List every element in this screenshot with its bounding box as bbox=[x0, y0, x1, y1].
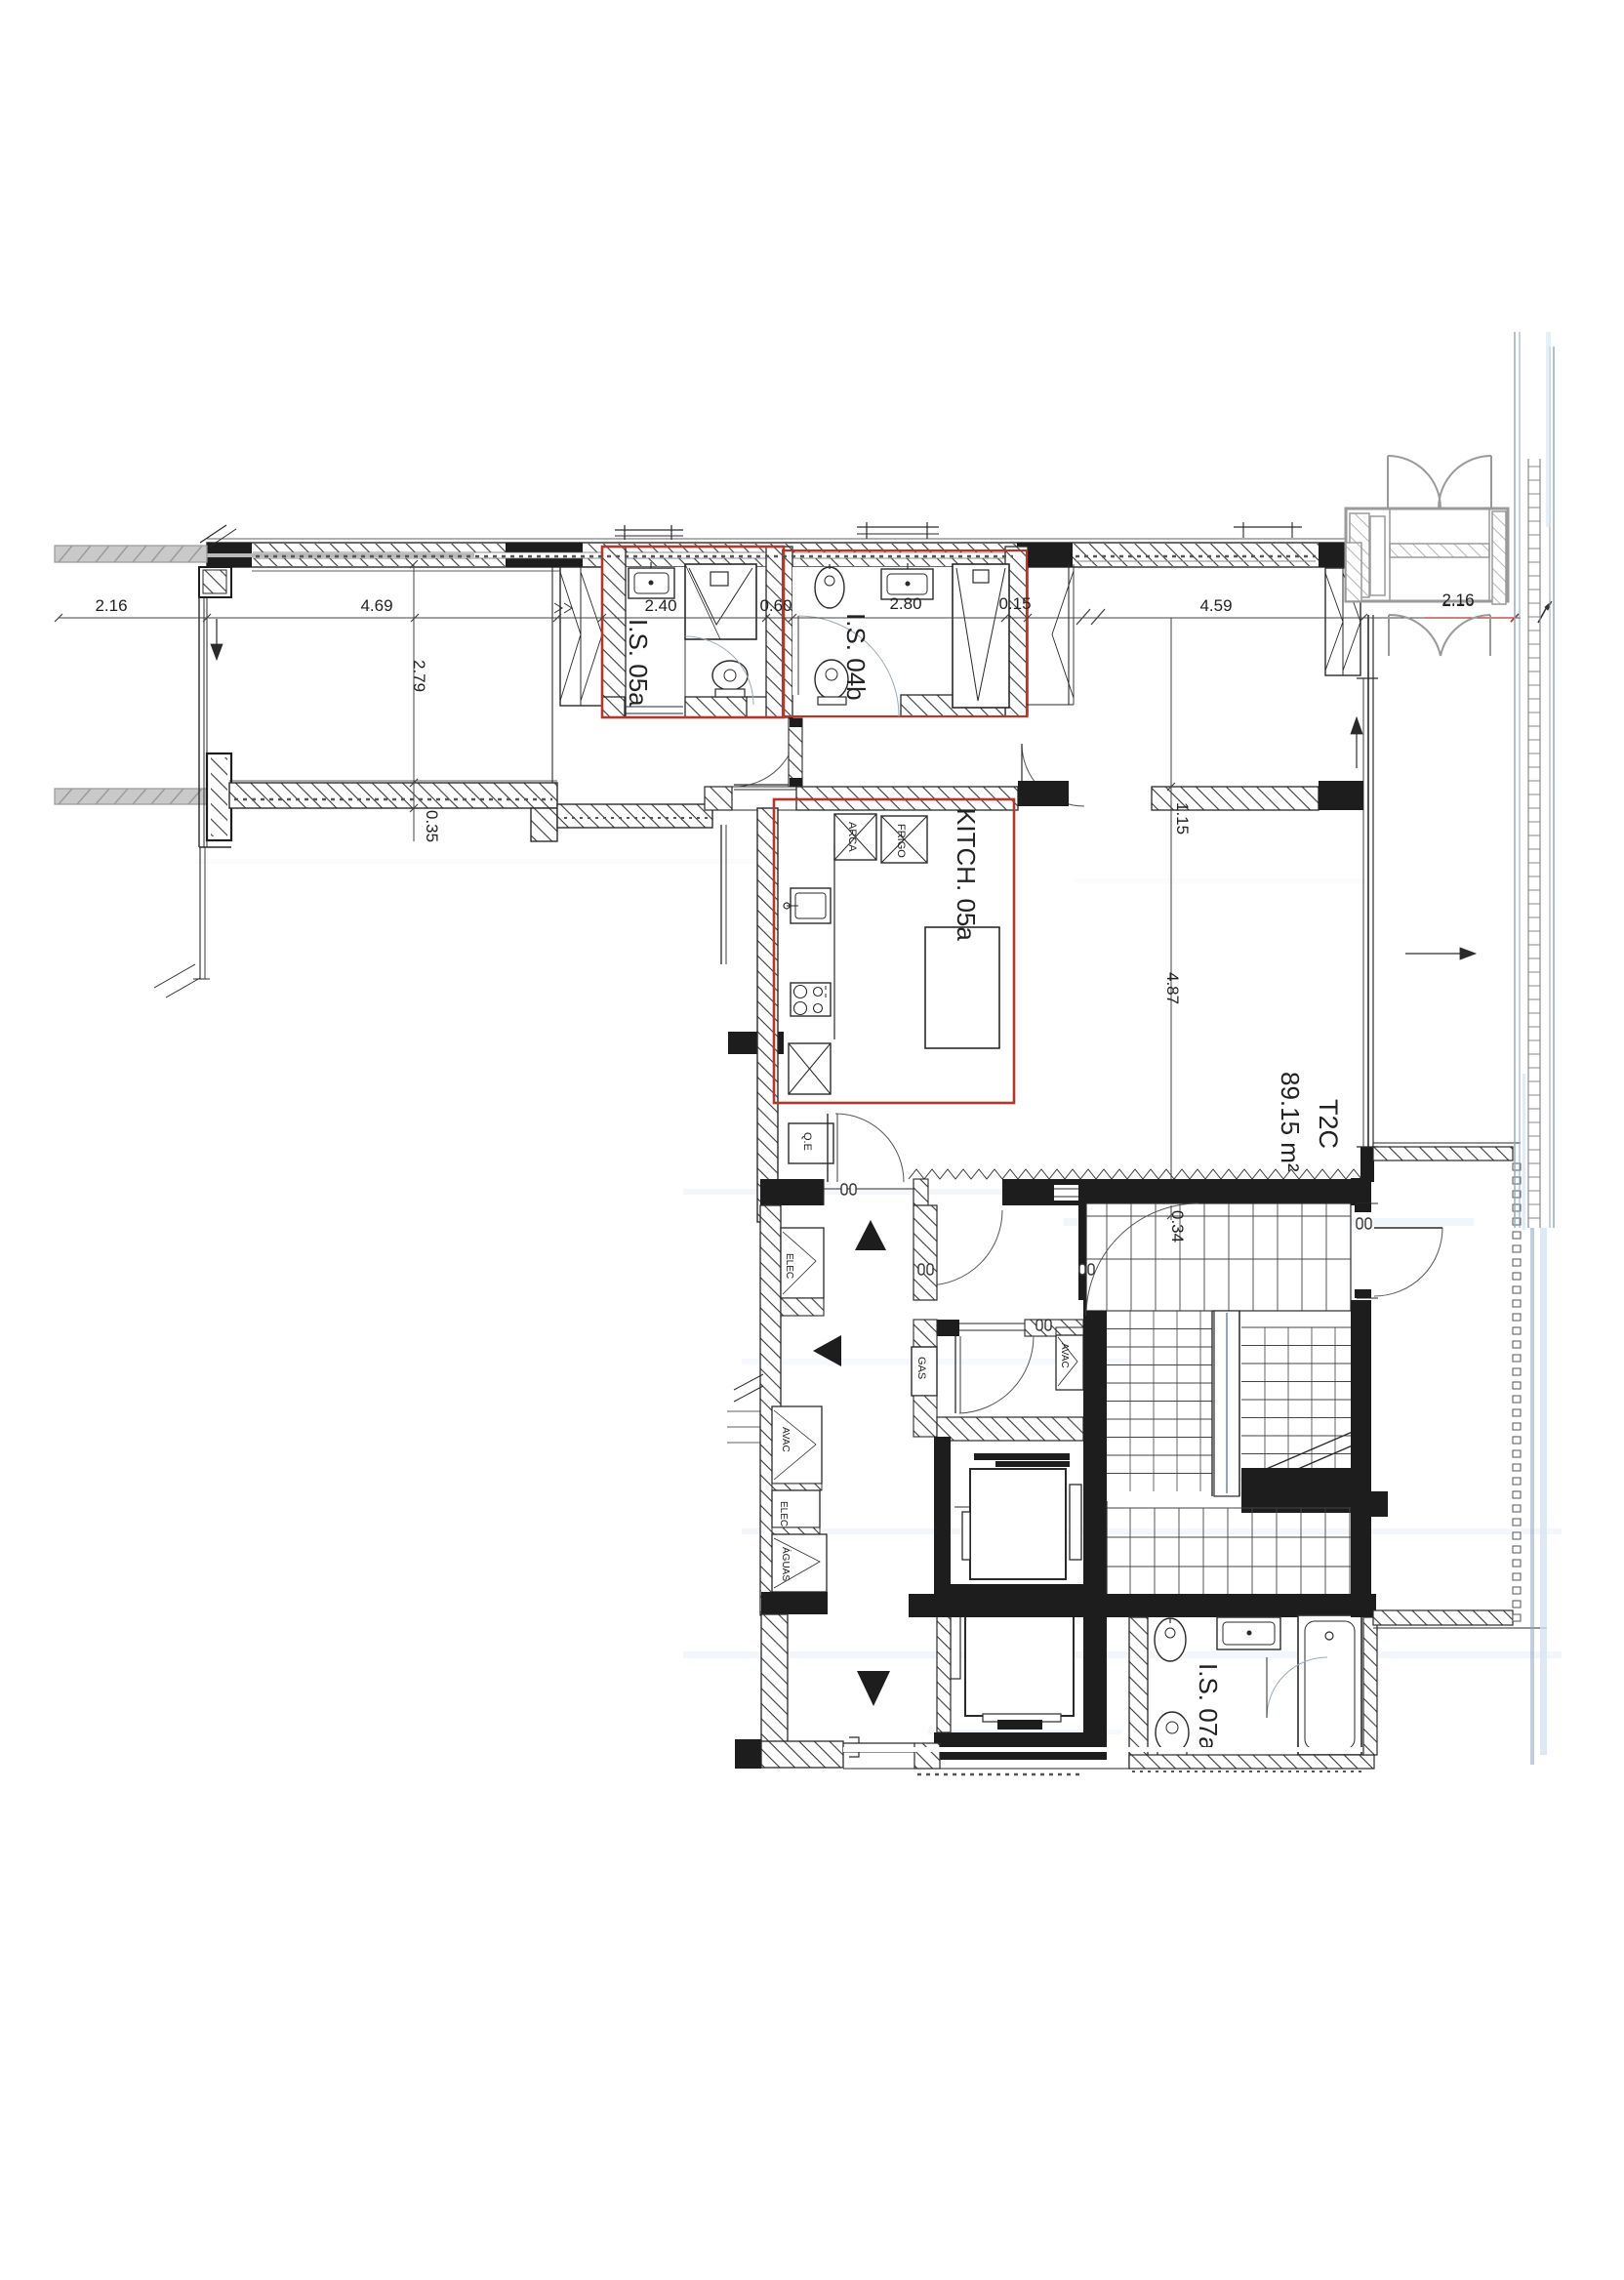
svg-text:1.15: 1.15 bbox=[1173, 802, 1192, 835]
svg-text:I.S. 04b: I.S. 04b bbox=[841, 613, 871, 701]
svg-text:2.16: 2.16 bbox=[1441, 590, 1474, 609]
svg-text:ELEC: ELEC bbox=[778, 1501, 789, 1527]
svg-text:2.80: 2.80 bbox=[889, 594, 921, 613]
svg-text:4.59: 4.59 bbox=[1199, 596, 1232, 615]
svg-text:T2C: T2C bbox=[1314, 1099, 1343, 1149]
svg-text:GAS: GAS bbox=[915, 1357, 927, 1379]
svg-text:0.35: 0.35 bbox=[423, 810, 441, 842]
svg-text:FRIGO: FRIGO bbox=[895, 824, 907, 858]
svg-text:ELEC: ELEC bbox=[784, 1253, 794, 1279]
svg-text:4.87: 4.87 bbox=[1163, 972, 1182, 1004]
svg-text:ARCA: ARCA bbox=[846, 822, 858, 852]
svg-text:I.S. 07a: I.S. 07a bbox=[1194, 1663, 1223, 1751]
svg-text:2.79: 2.79 bbox=[410, 660, 428, 692]
svg-text:KITCH. 05a: KITCH. 05a bbox=[952, 808, 981, 941]
svg-text:I.S. 05a: I.S. 05a bbox=[624, 619, 653, 707]
svg-text:2.40: 2.40 bbox=[644, 596, 676, 615]
svg-text:4.69: 4.69 bbox=[360, 596, 392, 615]
svg-text:89.15 m²: 89.15 m² bbox=[1276, 1072, 1305, 1172]
svg-text:0.60: 0.60 bbox=[759, 596, 792, 615]
svg-text:AVAC: AVAC bbox=[1059, 1343, 1070, 1368]
svg-text:0.15: 0.15 bbox=[998, 594, 1031, 613]
svg-text:ÁGUAS: ÁGUAS bbox=[780, 1547, 792, 1581]
svg-text:AVAC: AVAC bbox=[780, 1427, 791, 1452]
svg-text:Q.E: Q.E bbox=[801, 1132, 813, 1151]
svg-text:2.16: 2.16 bbox=[95, 596, 127, 615]
